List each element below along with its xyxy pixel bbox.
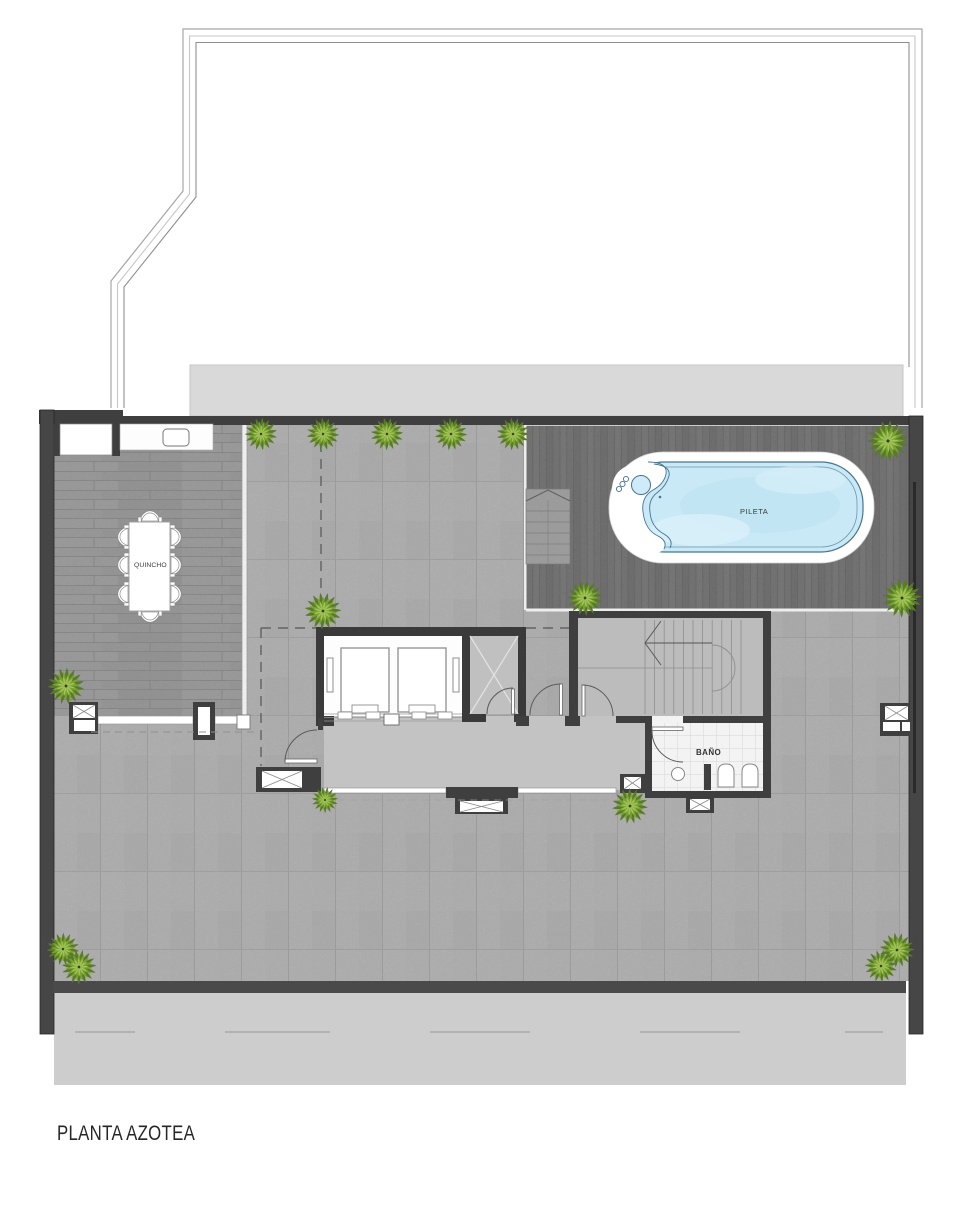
svg-text:BAÑO: BAÑO bbox=[696, 748, 721, 757]
svg-text:PLANTA AZOTEA: PLANTA AZOTEA bbox=[57, 1122, 195, 1145]
svg-text:PILETA: PILETA bbox=[740, 507, 768, 516]
svg-text:QUINCHO: QUINCHO bbox=[134, 562, 167, 569]
